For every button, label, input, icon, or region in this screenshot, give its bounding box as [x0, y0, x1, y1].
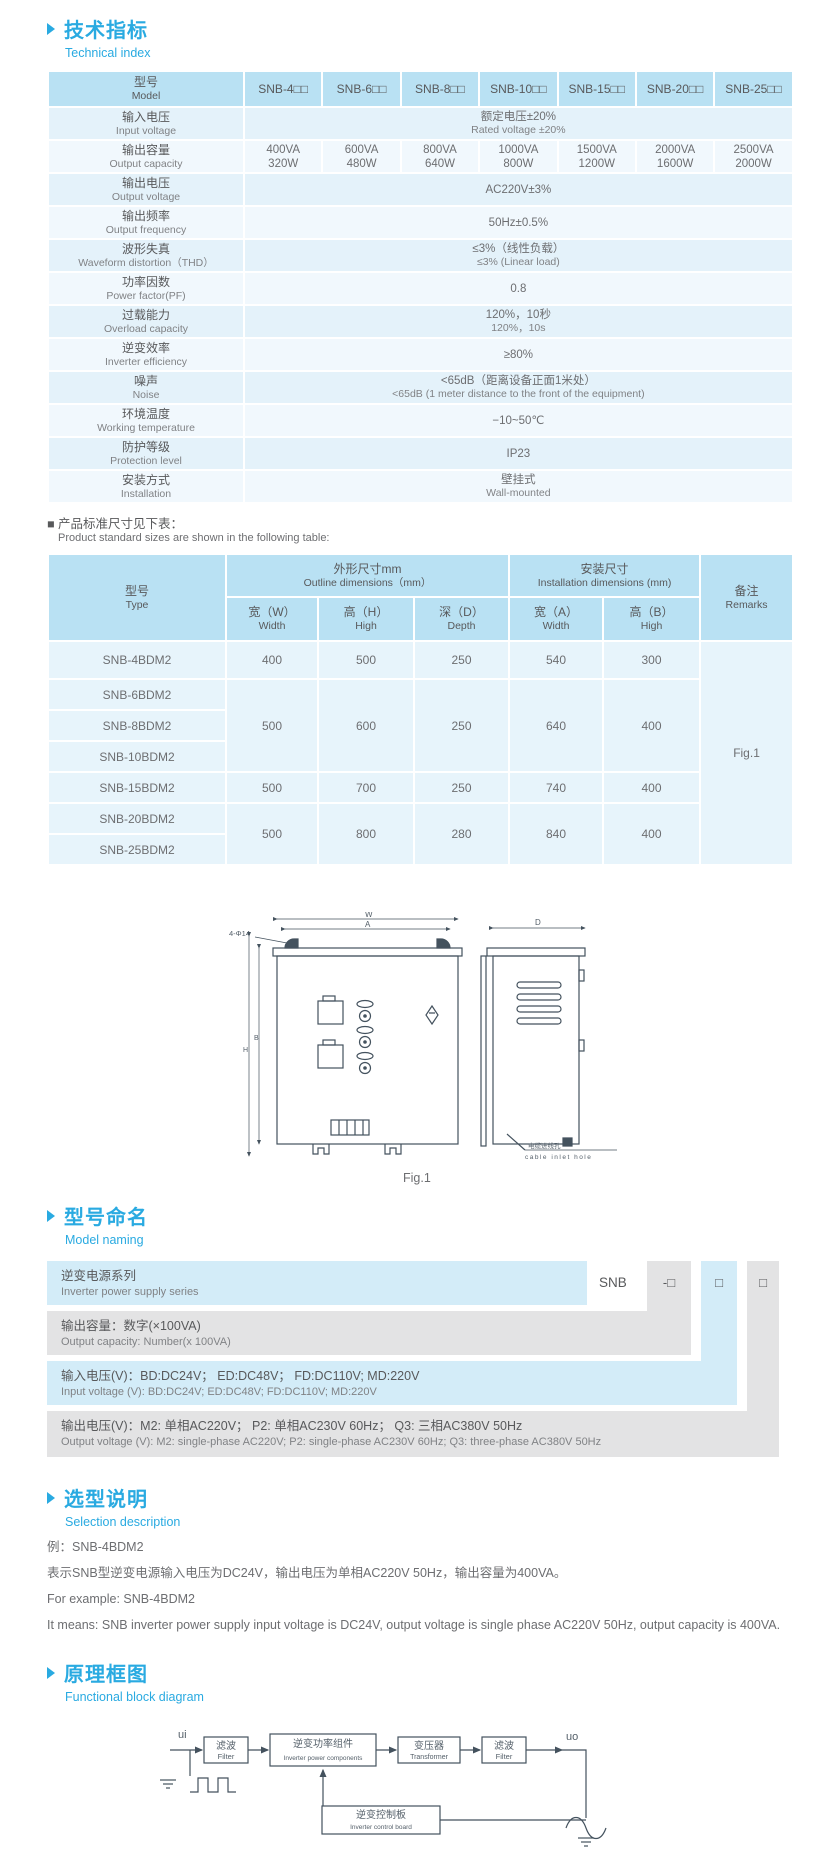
svg-text:Filter: Filter	[218, 1752, 235, 1761]
table-row: 输出电压Output voltage AC220V±3%	[48, 173, 793, 206]
spec-header-col: SNB-10□□	[479, 71, 557, 107]
output-signal-label: uo	[566, 1731, 578, 1743]
indicator-slot	[357, 1053, 373, 1060]
indicator-dot	[363, 1066, 367, 1070]
indicator-dot	[363, 1014, 367, 1018]
svg-text:Transformer: Transformer	[410, 1754, 449, 1761]
side-body	[493, 956, 579, 1144]
meter-tab	[323, 1040, 335, 1045]
size-header-type: 型号Type	[48, 554, 226, 641]
table-row: 输出容量Output capacity 400VA320W 600VA480W …	[48, 140, 793, 173]
size-col-d: 深（D）Depth	[414, 597, 509, 641]
section-title-en: Technical index	[65, 46, 792, 60]
panel-meter-1	[318, 1001, 343, 1024]
table-row: 过载能力Overload capacity 120%，10秒120%，10s	[48, 305, 793, 338]
svg-text:滤波: 滤波	[216, 1739, 236, 1752]
table-row: 输入电压Input voltage 额定电压±20%Rated voltage …	[48, 107, 793, 140]
panel-meter-2	[318, 1045, 343, 1068]
dim-a-label: A	[365, 920, 371, 929]
input-signal-label: ui	[178, 1729, 187, 1741]
size-col-a: 宽（A）Width	[509, 597, 603, 641]
dim-d-label: D	[535, 918, 541, 927]
mounting-ear-left	[285, 939, 298, 948]
naming-row-output-voltage: 输出电压(V)：M2: 单相AC220V； P2: 单相AC230V 60Hz；…	[47, 1411, 779, 1457]
naming-row-series: 逆变电源系列 Inverter power supply series	[47, 1261, 587, 1305]
size-table: 型号Type 外形尺寸mmOutline dimensions（mm） 安装尺寸…	[47, 553, 794, 866]
foot-right	[385, 1144, 401, 1154]
naming-col-output: □	[747, 1261, 779, 1457]
series-code: SNB	[599, 1275, 627, 1290]
side-top-cap	[487, 948, 585, 956]
indicator-slot	[357, 1001, 373, 1008]
louver-vent	[517, 1018, 561, 1024]
svg-text:滤波: 滤波	[494, 1739, 514, 1752]
svg-text:Inverter control board: Inverter control board	[350, 1824, 412, 1831]
louver-vent	[517, 1006, 561, 1012]
side-foot	[563, 1138, 572, 1146]
table-row: 噪声Noise <65dB（距离设备正面1米处）<65dB (1 meter d…	[48, 371, 793, 404]
selection-line: It means: SNB inverter power supply inpu…	[47, 1617, 792, 1634]
wall-plate	[481, 956, 486, 1146]
naming-col-input: □	[701, 1261, 737, 1405]
section-arrow-icon	[47, 1492, 55, 1504]
block-diagram-svg: ui 滤波 Filter 逆变功率组件 Inverter power compo…	[150, 1718, 630, 1850]
hinge	[579, 1040, 584, 1051]
cabinet-top-cap	[273, 948, 462, 956]
louver-vent	[517, 994, 561, 1000]
section-title-zh: 技术指标	[64, 14, 148, 43]
section-block-diagram-title: 原理框图	[47, 1658, 792, 1687]
section-arrow-icon	[47, 1667, 55, 1679]
size-col-b: 高（B）High	[603, 597, 700, 641]
spec-header-col: SNB-20□□	[636, 71, 714, 107]
cable-inlet-label-zh: 电缆进线孔	[528, 1141, 561, 1150]
table-row: SNB-20BDM2 500 800 280 840 400	[48, 803, 793, 834]
cable-inlet-label-en: cable inlet hole	[525, 1154, 592, 1161]
lock-handle	[426, 1006, 438, 1024]
mounting-holes-label: 4-Φ14	[229, 929, 250, 938]
spec-header-col: SNB-4□□	[244, 71, 322, 107]
section-arrow-icon	[47, 1210, 55, 1222]
indicator-slot	[357, 1027, 373, 1034]
table-row: 功率因数Power factor(PF) 0.8	[48, 272, 793, 305]
cabinet-body	[277, 956, 458, 1144]
side-view: D 电缆进线孔 cable inlet hole	[481, 918, 617, 1161]
sine-wave-icon	[566, 1818, 606, 1847]
louver-vent	[517, 982, 561, 988]
size-header-row: 型号Type 外形尺寸mmOutline dimensions（mm） 安装尺寸…	[48, 554, 793, 597]
model-naming-diagram: 逆变电源系列 Inverter power supply series 输出容量…	[47, 1261, 792, 1457]
page: 技术指标 Technical index 型号 Model SNB-4□□ SN…	[0, 0, 792, 1855]
dim-w-label: W	[365, 912, 373, 919]
block-diagram: ui 滤波 Filter 逆变功率组件 Inverter power compo…	[150, 1718, 792, 1855]
size-col-h: 高（H）High	[318, 597, 414, 641]
size-header-install: 安装尺寸Installation dimensions (mm)	[509, 554, 700, 597]
selection-line: 例：SNB-4BDM2	[47, 1539, 792, 1556]
svg-text:变压器: 变压器	[414, 1739, 444, 1752]
spec-header-row: 型号 Model SNB-4□□ SNB-6□□ SNB-8□□ SNB-10□…	[48, 71, 793, 107]
mounting-ear-right	[437, 939, 450, 948]
size-header-remarks: 备注Remarks	[700, 554, 793, 641]
naming-row-capacity: 输出容量：数字(×100VA) Output capacity: Number(…	[47, 1311, 691, 1355]
dim-h-label: H	[243, 1047, 248, 1054]
table-row: 波形失真Waveform distortion（THD） ≤3%（线性负载）≤3…	[48, 239, 793, 272]
svg-text:Filter: Filter	[496, 1752, 513, 1761]
table-row: SNB-4BDM2 400 500 250 540 300 Fig.1	[48, 641, 793, 679]
hinge	[579, 970, 584, 981]
table-row: 逆变效率Inverter efficiency ≥80%	[48, 338, 793, 371]
table-row: 安装方式Installation 壁挂式Wall-mounted	[48, 470, 793, 503]
spec-header-col: SNB-15□□	[558, 71, 636, 107]
table-row: 输出频率Output frequency 50Hz±0.5%	[48, 206, 793, 239]
table-row: 环境温度Working temperature −10~50℃	[48, 404, 793, 437]
indicator-dot	[363, 1040, 367, 1044]
size-remark-cell: Fig.1	[700, 641, 793, 865]
spec-header-col: SNB-25□□	[714, 71, 792, 107]
svg-text:Inverter power components: Inverter power components	[284, 1755, 364, 1762]
figure-caption: Fig.1	[225, 1171, 655, 1185]
naming-col-capacity: -□	[647, 1261, 691, 1355]
front-view	[273, 939, 462, 1154]
meter-tab	[323, 996, 335, 1001]
dim-b-label: B	[254, 1035, 259, 1042]
section-arrow-icon	[47, 23, 55, 35]
foot-left	[313, 1144, 329, 1154]
naming-row-input-voltage: 输入电压(V)：BD:DC24V； ED:DC48V； FD:DC110V; M…	[47, 1361, 737, 1405]
section-technical-title: 技术指标	[47, 14, 792, 43]
size-note: ■ 产品标准尺寸见下表： Product standard sizes are …	[47, 517, 792, 545]
svg-text:逆变控制板: 逆变控制板	[356, 1808, 406, 1821]
size-header-outline: 外形尺寸mmOutline dimensions（mm）	[226, 554, 509, 597]
spec-table: 型号 Model SNB-4□□ SNB-6□□ SNB-8□□ SNB-10□…	[47, 70, 794, 504]
selection-line: For example: SNB-4BDM2	[47, 1591, 792, 1608]
selection-text: 例：SNB-4BDM2 表示SNB型逆变电源输入电压为DC24V，输出电压为单相…	[47, 1539, 792, 1634]
table-row: SNB-6BDM2 500 600 250 640 400	[48, 679, 793, 710]
cabinet-drawing-svg: W A 4-Φ14 H B	[225, 912, 655, 1164]
size-col-w: 宽（W）Width	[226, 597, 318, 641]
table-row: SNB-15BDM2 500 700 250 740 400	[48, 772, 793, 803]
spec-header-col: SNB-6□□	[322, 71, 400, 107]
selection-line: 表示SNB型逆变电源输入电压为DC24V，输出电压为单相AC220V 50Hz，…	[47, 1565, 792, 1582]
svg-text:逆变功率组件: 逆变功率组件	[293, 1737, 353, 1750]
spec-header-col: SNB-8□□	[401, 71, 479, 107]
section-selection-title: 选型说明	[47, 1483, 792, 1512]
table-row: 防护等级Protection level IP23	[48, 437, 793, 470]
spec-header-model: 型号 Model	[48, 71, 244, 107]
section-model-naming-title: 型号命名	[47, 1201, 792, 1230]
cabinet-drawing: W A 4-Φ14 H B	[225, 912, 655, 1185]
